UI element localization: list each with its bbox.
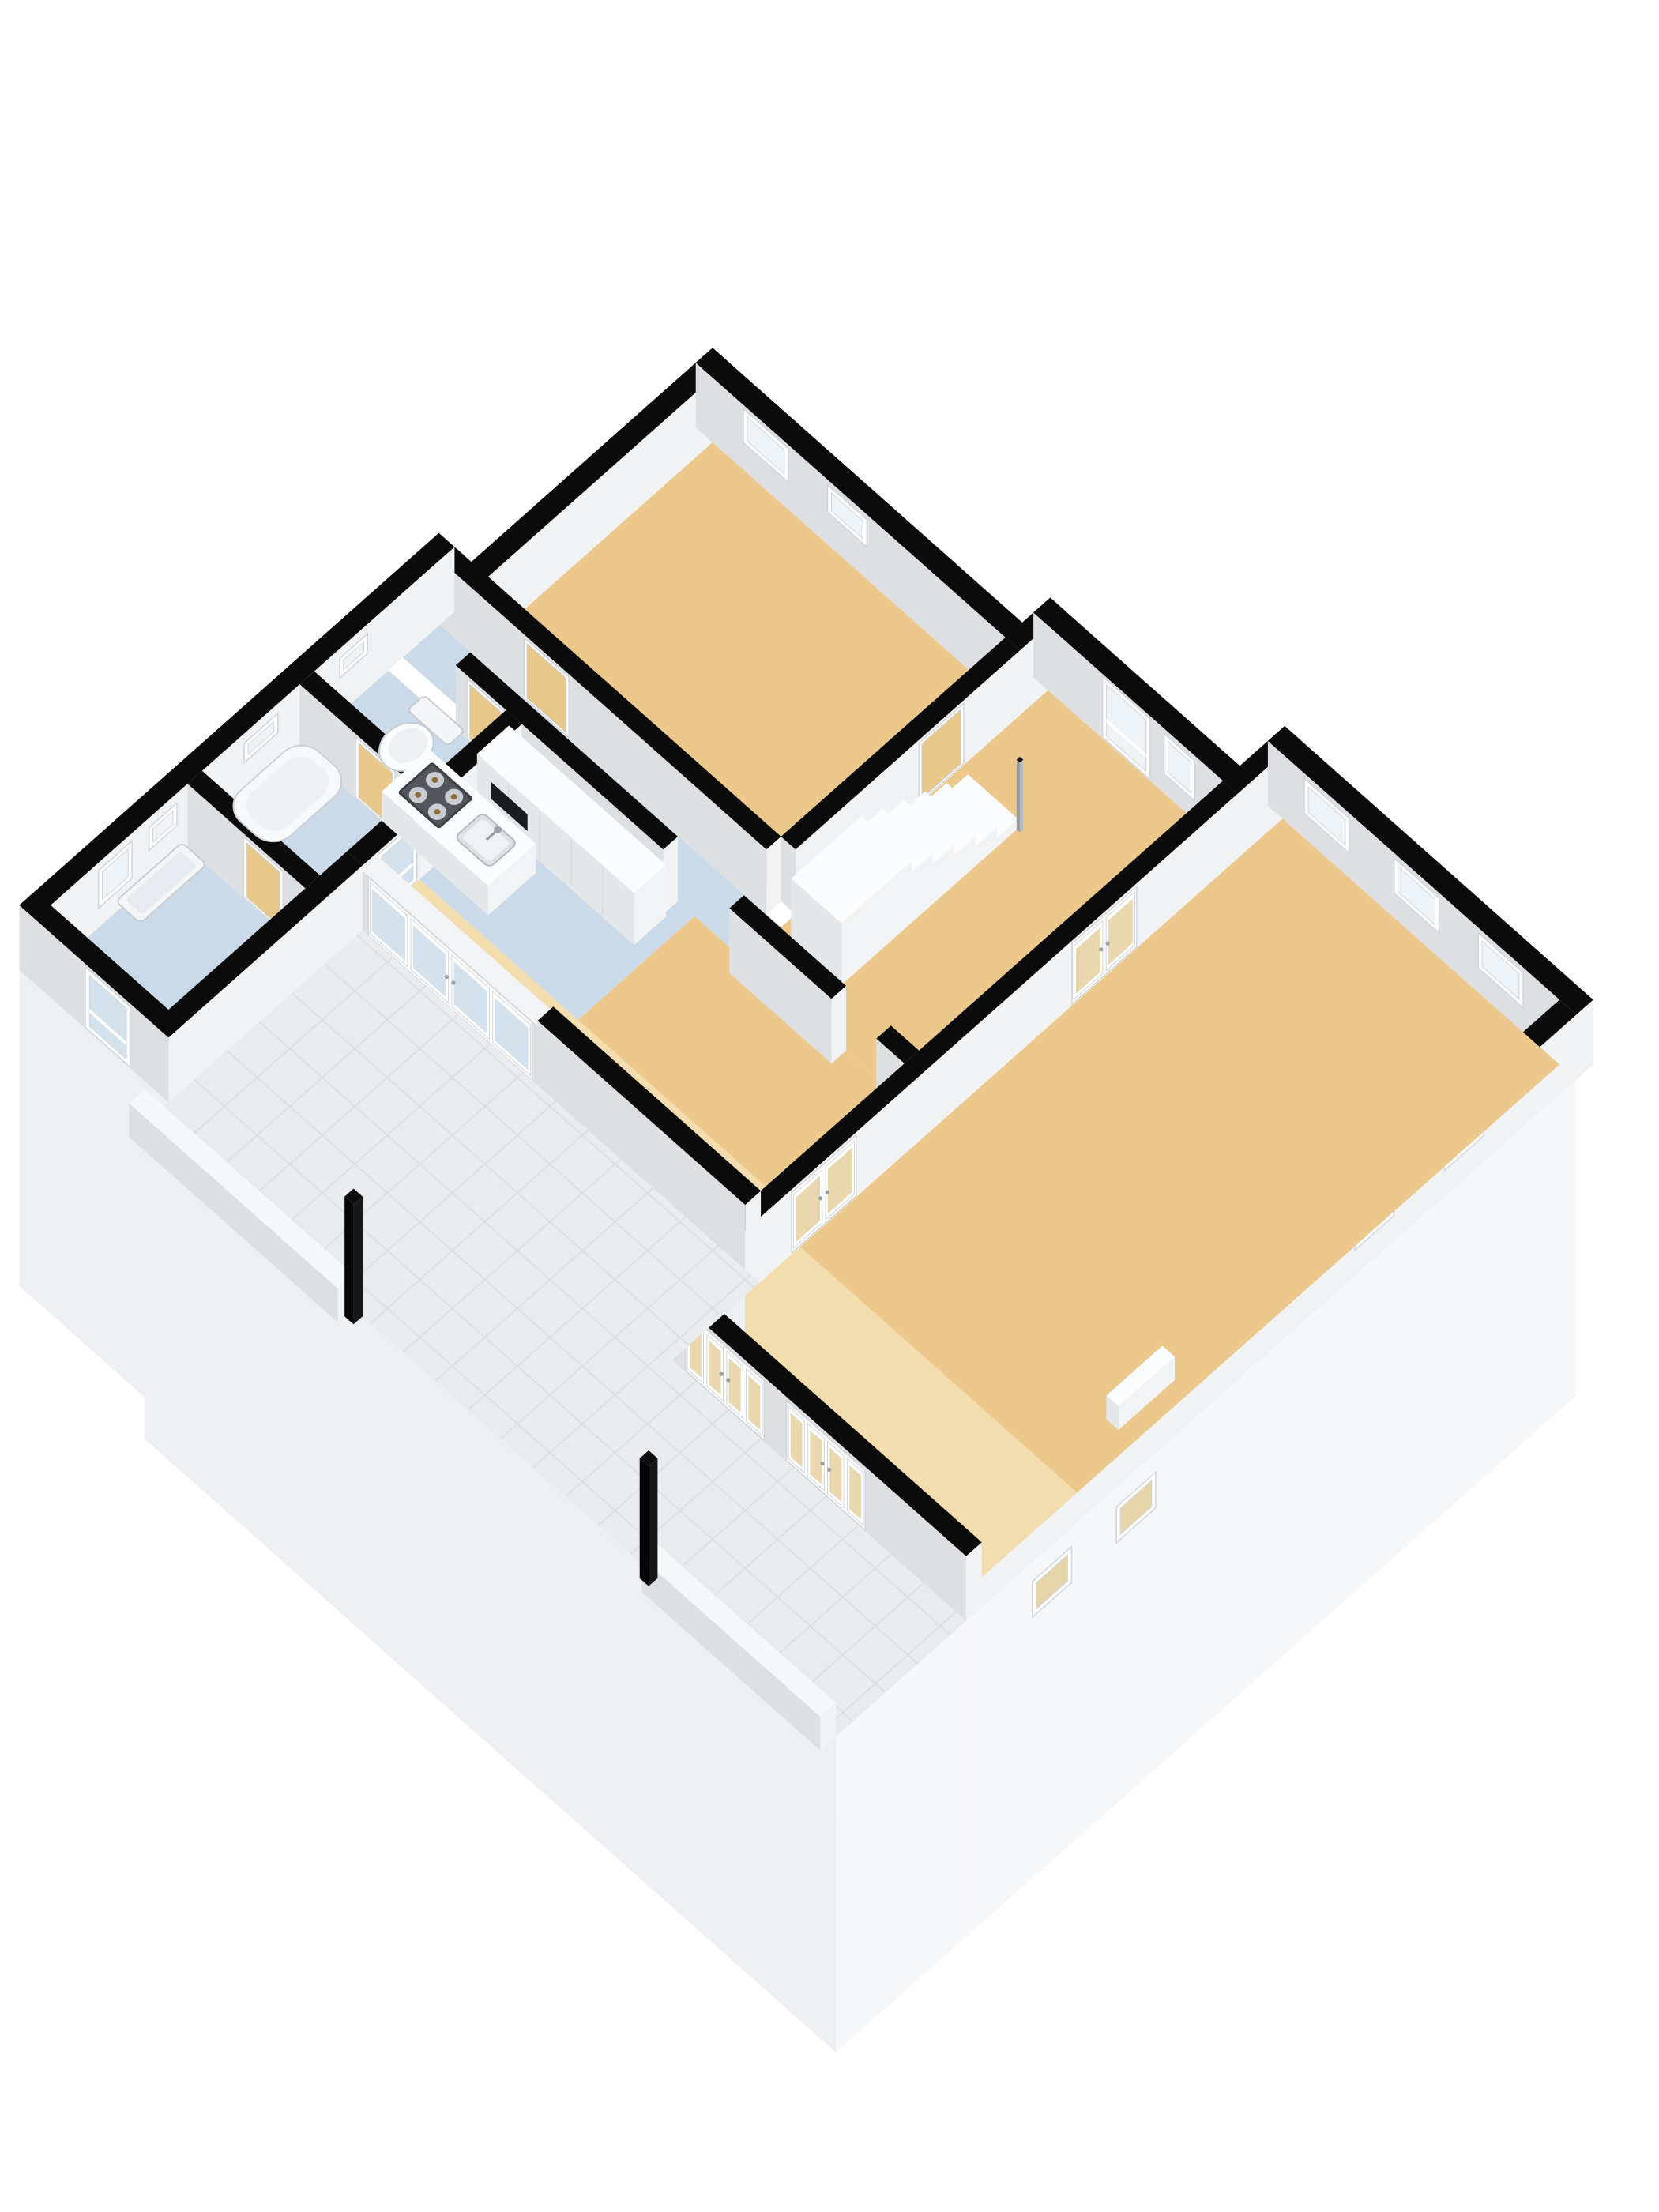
floor-plan-3d <box>0 0 1659 2212</box>
floor-plan-page <box>0 0 1659 2212</box>
scene-root <box>19 348 1593 2052</box>
terrace-post-2 <box>640 1450 658 1586</box>
terrace-post-1 <box>344 1189 363 1325</box>
stair-rail-post <box>1017 757 1024 833</box>
